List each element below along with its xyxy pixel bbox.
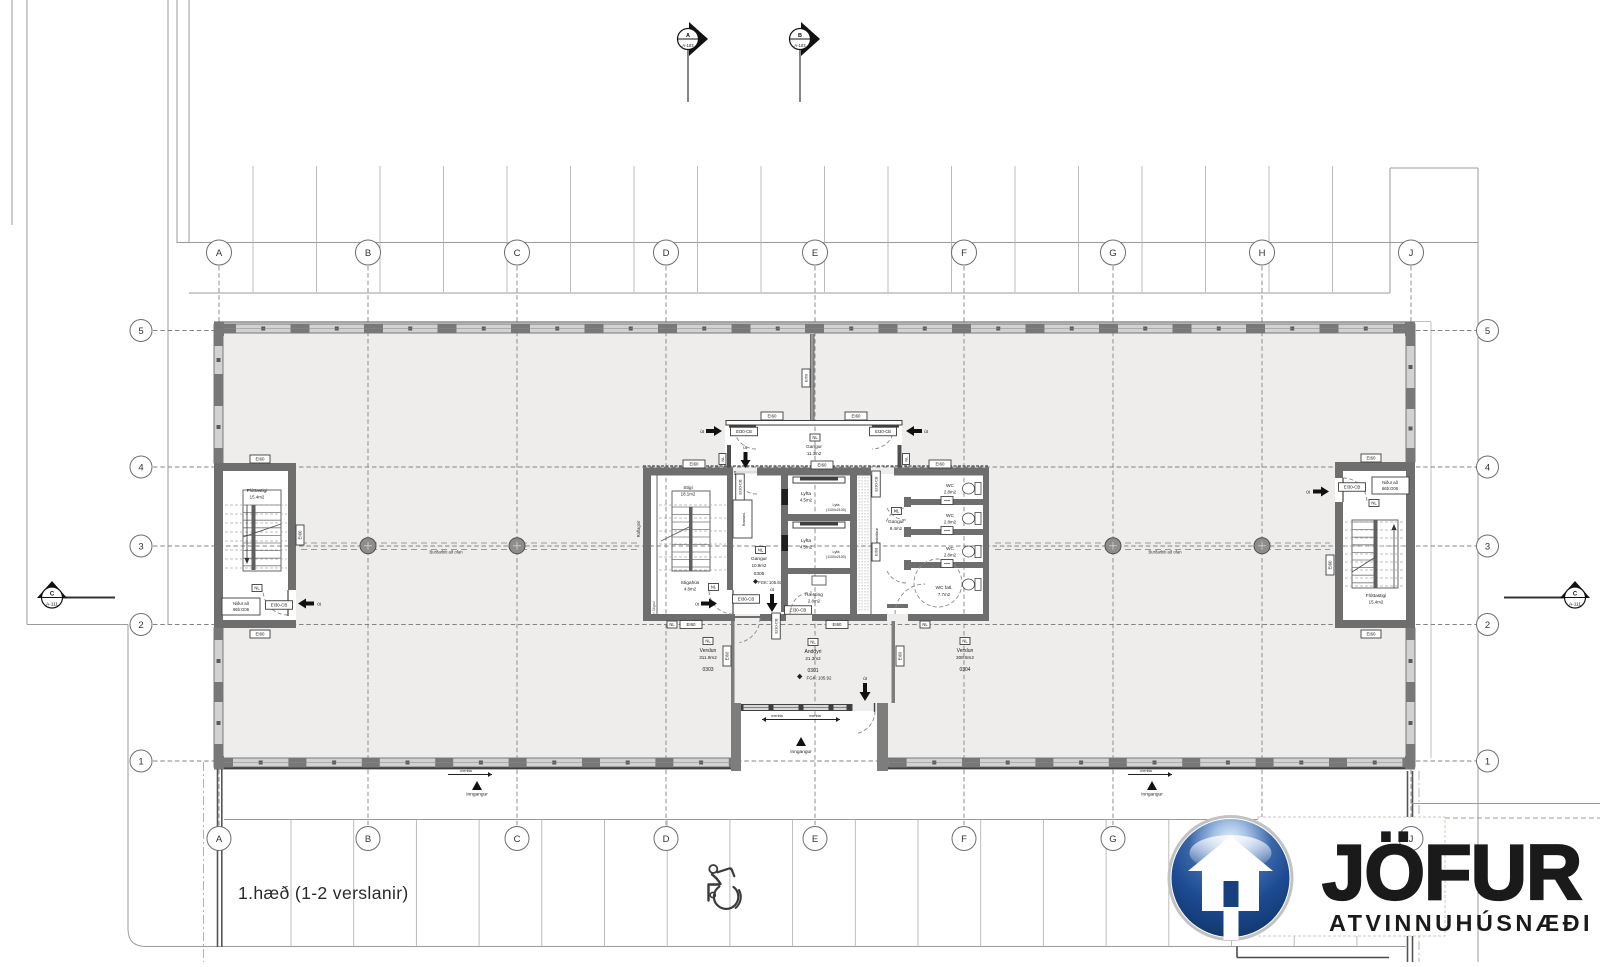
svg-text:G: G <box>1109 834 1116 845</box>
svg-text:NL: NL <box>810 640 816 645</box>
svg-text:66b:G06: 66b:G06 <box>1382 486 1399 491</box>
svg-text:NL: NL <box>1371 501 1377 506</box>
svg-text:NL: NL <box>904 457 908 462</box>
svg-text:Niður að: Niður að <box>1382 480 1398 485</box>
svg-text:NL: NL <box>254 586 260 591</box>
svg-text:JÖFUR: JÖFUR <box>1322 828 1581 916</box>
svg-text:1: 1 <box>1485 756 1490 767</box>
svg-text:NL: NL <box>721 457 725 462</box>
svg-text:2.8m2: 2.8m2 <box>808 599 821 604</box>
svg-text:3: 3 <box>1485 541 1490 552</box>
svg-text:A: A <box>216 248 223 259</box>
svg-text:Verslun: Verslun <box>700 648 717 654</box>
svg-text:0303: 0303 <box>702 667 713 673</box>
svg-text:A-111: A-111 <box>46 602 58 608</box>
svg-text:EI60: EI60 <box>255 457 265 462</box>
svg-text:A: A <box>686 33 690 39</box>
svg-text:18.1m2: 18.1m2 <box>681 492 696 497</box>
svg-text:4: 4 <box>138 462 143 473</box>
svg-text:Stigahús: Stigahús <box>681 580 700 586</box>
svg-text:8.4m2: 8.4m2 <box>890 526 903 531</box>
svg-text:2.8m2: 2.8m2 <box>944 520 957 525</box>
svg-text:D: D <box>663 834 670 845</box>
svg-text:WC: WC <box>946 546 955 552</box>
svg-text:EI30-CB: EI30-CB <box>1344 485 1361 490</box>
svg-text:Verslun: Verslun <box>957 648 974 654</box>
svg-text:10.9m2: 10.9m2 <box>752 563 767 568</box>
svg-text:WC: WC <box>946 513 955 519</box>
svg-text:EI60: EI60 <box>803 373 808 382</box>
svg-text:Flóttastigi: Flóttastigi <box>247 488 268 494</box>
svg-text:EI60: EI60 <box>686 622 696 627</box>
svg-text:Inngangur: Inngangur <box>466 792 488 798</box>
svg-text:Anddyri: Anddyri <box>805 649 822 655</box>
svg-text:0301: 0301 <box>807 668 818 674</box>
svg-text:66b:G06: 66b:G06 <box>233 607 250 612</box>
svg-text:0304: 0304 <box>959 667 970 673</box>
svg-text:EI60: EI60 <box>298 530 303 540</box>
svg-text:EI30-CB: EI30-CB <box>737 479 742 494</box>
svg-text:merkta: merkta <box>1140 769 1152 773</box>
svg-text:1: 1 <box>138 756 143 767</box>
svg-text:2.8m2: 2.8m2 <box>944 490 957 495</box>
svg-text:A-103: A-103 <box>682 43 694 48</box>
svg-text:ATVINNUHÚSNÆÐI: ATVINNUHÚSNÆÐI <box>1329 909 1593 936</box>
svg-text:2: 2 <box>138 620 143 631</box>
svg-text:EI30-CB: EI30-CB <box>873 476 878 491</box>
svg-text:B: B <box>365 248 371 259</box>
svg-text:EI60: EI60 <box>832 622 842 627</box>
svg-text:3: 3 <box>138 541 143 552</box>
svg-text:Gangur: Gangur <box>806 444 822 450</box>
svg-text:E: E <box>812 834 818 845</box>
svg-text:C: C <box>50 592 55 598</box>
svg-text:11.3m2: 11.3m2 <box>807 451 822 456</box>
svg-text:EI60: EI60 <box>689 462 699 467</box>
svg-text:NL: NL <box>758 548 764 553</box>
svg-text:F: F <box>961 834 967 845</box>
svg-text:J: J <box>1409 248 1414 259</box>
svg-text:A: A <box>216 834 223 845</box>
svg-text:4.5m2: 4.5m2 <box>800 498 813 503</box>
svg-text:15.4m2: 15.4m2 <box>250 495 265 500</box>
svg-text:Gangur: Gangur <box>751 556 767 562</box>
svg-text:B: B <box>798 33 802 39</box>
svg-text:Lyfta: Lyfta <box>801 491 812 497</box>
svg-text:Burðarbiti að ofan: Burðarbiti að ofan <box>429 550 463 555</box>
svg-text:Þ.Stigaú: Þ.Stigaú <box>652 601 656 615</box>
svg-text:D: D <box>663 248 670 259</box>
svg-text:C: C <box>514 248 521 259</box>
svg-text:F: F <box>961 248 967 259</box>
svg-text:FGK: 105.92: FGK: 105.92 <box>807 676 832 681</box>
svg-text:2: 2 <box>1485 620 1490 631</box>
svg-text:G: G <box>1109 248 1116 259</box>
svg-text:EI30-CB: EI30-CB <box>736 429 752 434</box>
svg-text:5: 5 <box>138 326 143 337</box>
svg-text:NL: NL <box>922 622 928 627</box>
svg-text:EI60: EI60 <box>817 463 827 468</box>
svg-text:Lyfa: Lyfa <box>832 550 840 554</box>
svg-text:NL: NL <box>705 639 711 644</box>
svg-text:NL: NL <box>812 435 818 440</box>
svg-text:EI60: EI60 <box>935 462 945 467</box>
svg-text:WC: WC <box>946 483 955 489</box>
svg-text:E: E <box>812 248 818 259</box>
svg-text:A-111: A-111 <box>1569 602 1581 608</box>
svg-text:merkta: merkta <box>460 769 472 773</box>
svg-text:(1100x2100): (1100x2100) <box>826 508 846 512</box>
svg-text:FGK: 105.93: FGK: 105.93 <box>758 580 782 585</box>
svg-text:Brunasl.: Brunasl. <box>742 512 746 526</box>
svg-text:Burðarbiti að ofan: Burðarbiti að ofan <box>1148 550 1182 555</box>
svg-text:Stigi: Stigi <box>683 485 692 491</box>
svg-text:EI30-CB: EI30-CB <box>875 429 891 434</box>
svg-text:EI60: EI60 <box>767 414 777 419</box>
svg-text:EI60: EI60 <box>1366 632 1376 637</box>
svg-text:EI60: EI60 <box>1366 456 1376 461</box>
svg-text:NL: NL <box>711 585 717 590</box>
svg-text:7.7m2: 7.7m2 <box>938 592 951 597</box>
svg-text:B: B <box>365 834 371 845</box>
svg-text:15.4m2: 15.4m2 <box>1369 600 1384 605</box>
svg-text:EI60: EI60 <box>1328 560 1333 570</box>
svg-text:EI30-CB: EI30-CB <box>773 618 778 633</box>
svg-text:308.8m2: 308.8m2 <box>956 655 974 660</box>
svg-text:NL: NL <box>962 639 968 644</box>
svg-text:EI60: EI60 <box>851 414 861 419</box>
svg-text:1.hæð (1-2 verslanir): 1.hæð (1-2 verslanir) <box>238 883 409 903</box>
svg-text:4: 4 <box>1485 462 1490 473</box>
svg-text:21.3m2: 21.3m2 <box>805 656 821 661</box>
svg-text:H: H <box>1259 248 1266 259</box>
svg-text:5: 5 <box>1485 326 1490 337</box>
svg-text:2.8m2: 2.8m2 <box>944 553 957 558</box>
svg-text:0305: 0305 <box>754 571 765 577</box>
svg-text:311.9m2: 311.9m2 <box>699 655 717 660</box>
svg-text:Flóttastigi: Flóttastigi <box>1366 593 1387 599</box>
svg-text:C: C <box>514 834 521 845</box>
svg-text:merkta: merkta <box>809 714 821 718</box>
svg-text:C: C <box>1573 592 1578 598</box>
svg-text:Niður að: Niður að <box>233 601 249 606</box>
svg-text:4.5m2: 4.5m2 <box>800 545 813 550</box>
svg-text:Lyfa: Lyfa <box>832 503 840 507</box>
svg-text:NL: NL <box>669 622 675 627</box>
svg-text:EI60: EI60 <box>873 547 878 556</box>
svg-text:Inngangur: Inngangur <box>1141 792 1163 798</box>
svg-text:Raflagnir: Raflagnir <box>636 520 641 537</box>
svg-text:Gangur: Gangur <box>888 519 904 525</box>
svg-text:(1100x2100): (1100x2100) <box>826 555 846 559</box>
svg-text:Inngangur: Inngangur <box>790 749 812 755</box>
svg-text:EI60: EI60 <box>725 651 730 660</box>
svg-text:EI60: EI60 <box>898 651 903 660</box>
svg-text:merkta: merkta <box>771 714 783 718</box>
svg-text:EI60: EI60 <box>255 632 265 637</box>
svg-text:4.8m2: 4.8m2 <box>684 587 697 592</box>
svg-text:A-103: A-103 <box>794 43 806 48</box>
svg-text:EI30-CB: EI30-CB <box>790 608 807 613</box>
svg-text:WC fatl.: WC fatl. <box>935 585 952 591</box>
svg-text:Ræsting: Ræsting <box>805 592 823 598</box>
svg-text:Lyfta: Lyfta <box>801 538 812 544</box>
svg-text:EI30-CB: EI30-CB <box>271 603 288 608</box>
svg-text:EI30-CB: EI30-CB <box>738 597 755 602</box>
